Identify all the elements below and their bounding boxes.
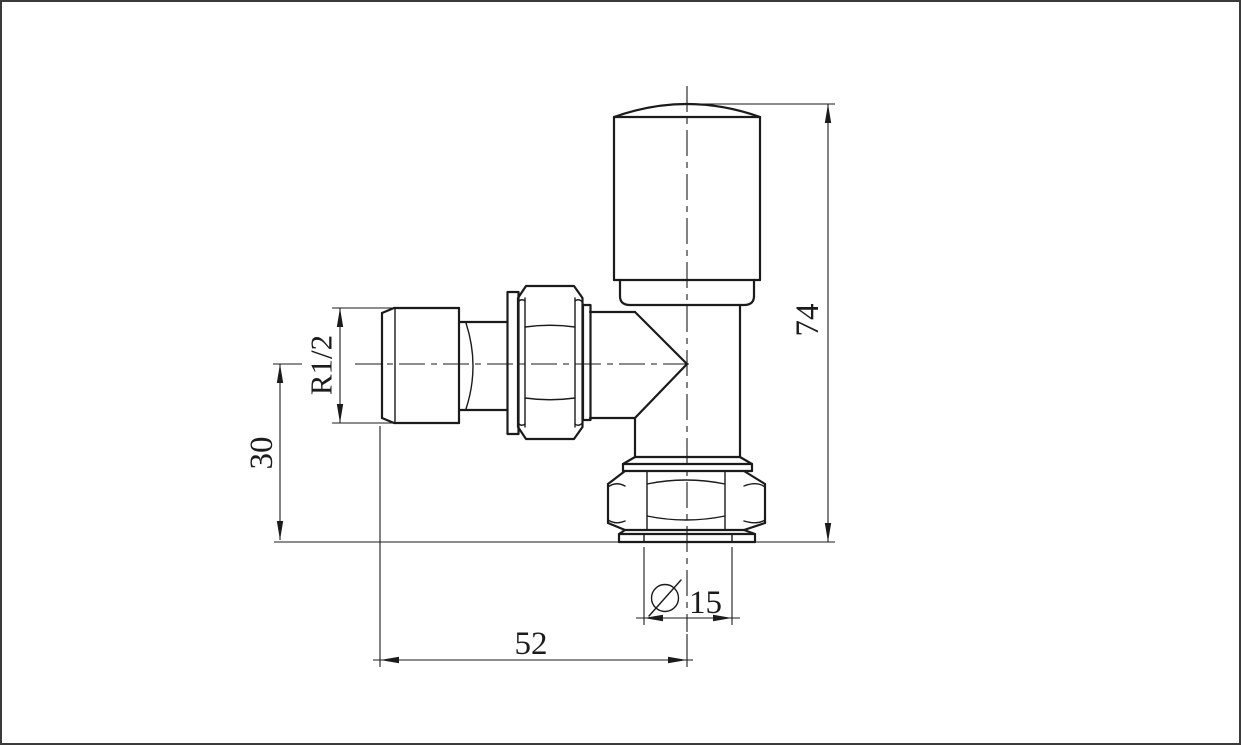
union-right-flange [583,305,591,420]
nut-corner-bottom-left [608,523,625,530]
drawing-sheet: R1/2 30 74 15 52 [0,0,1241,745]
dimension-inlet-center-height: 30 [244,364,302,540]
inlet-center-height-label: 30 [244,437,280,470]
r12-arrow-up [337,308,343,327]
dimension-pipe-diameter: 15 [636,547,740,625]
d52-arrow-right [668,657,687,663]
nut-corner-bottom-right [744,523,765,530]
center-to-inlet-label: 52 [515,626,548,662]
valve-technical-drawing: R1/2 30 74 15 52 [2,2,1241,745]
nut-corner-top-right [744,471,765,484]
male-thread-fitting [382,308,508,423]
nut-chamfer-arc-bottom [647,516,725,520]
r12-arrow-down [337,404,343,423]
nut-corner-top-left [608,471,625,484]
union-hex-chamfer-arc-top [525,325,575,327]
thread-end-chamfer-bottom [382,418,394,423]
total-height-label: 74 [790,304,826,337]
d30-arrow-down [277,521,283,540]
union-nut-assembly [508,286,591,439]
diameter-symbol-slash [649,580,681,616]
pipe-diameter-label: 15 [689,585,722,621]
union-left-flange [508,292,519,434]
d74-arrow-down [825,523,831,542]
thread-runout-arc [466,323,473,409]
d74-arrow-up [825,104,831,123]
d15-arrow-left [644,615,663,621]
valve-body [590,305,752,471]
d30-arrow-up [277,364,283,383]
body-chamfer-lower [635,364,687,418]
union-hex-corner-arcs [518,300,583,426]
thread-size-label: R1/2 [304,335,339,395]
pipe-bore-edges [644,534,732,542]
dimension-thread-size: R1/2 [304,308,450,423]
dimension-center-to-inlet: 52 [373,426,693,667]
nut-chamfer-arc-top [647,480,725,484]
union-hex-chamfer-arc-bottom [525,398,575,400]
body-chamfer-upper [635,312,687,364]
d52-arrow-left [380,657,399,663]
diameter-symbol-icon [649,580,681,616]
union-hex-outline [518,286,583,439]
thread-end-chamfer-top [382,308,394,313]
